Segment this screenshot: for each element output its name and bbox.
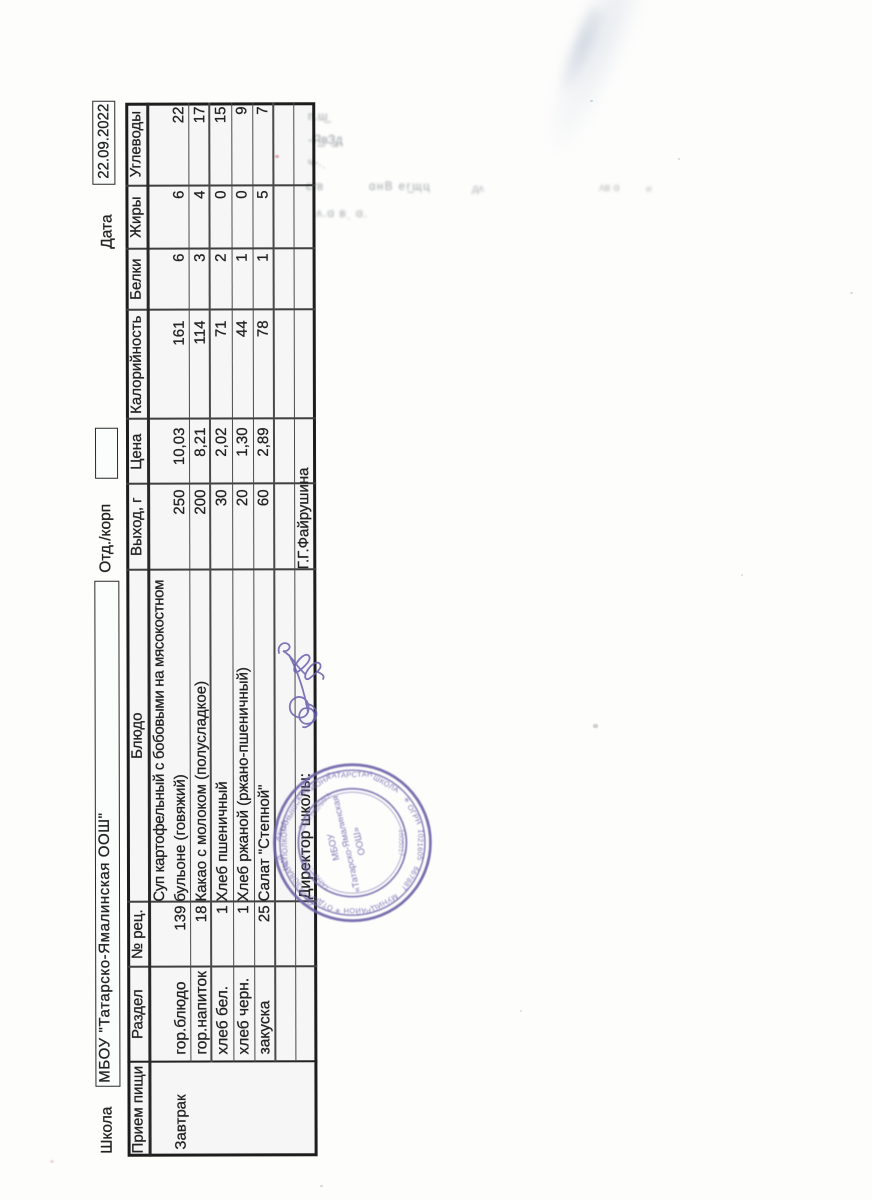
- svg-text:ООШ»: ООШ»: [350, 826, 367, 857]
- svg-text:РАЙОН ✳: РАЙОН ✳: [334, 907, 371, 916]
- svg-text:ШКОЛА: ШКОЛА: [371, 773, 400, 795]
- svg-text:МУНИЦ: МУНИЦ: [369, 892, 399, 914]
- svg-text:✳ ОГРН: ✳ ОГРН: [401, 795, 423, 826]
- svg-text:667887: 667887: [399, 865, 421, 893]
- svg-text:1605017: 1605017: [396, 829, 403, 856]
- svg-text:ТАТАРСТАН: ТАТАРСТАН: [326, 770, 372, 781]
- svg-text:1021605: 1021605: [415, 829, 425, 861]
